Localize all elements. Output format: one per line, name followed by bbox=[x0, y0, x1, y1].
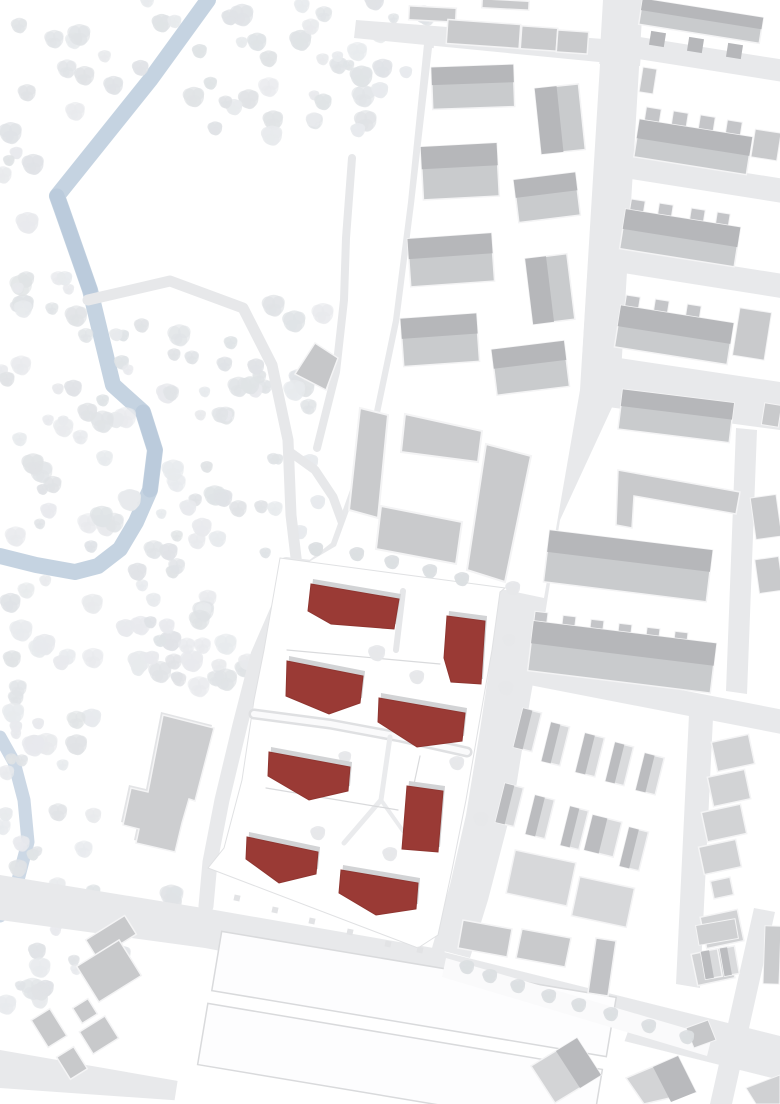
boundary-shrub bbox=[233, 894, 240, 901]
red-building-6 bbox=[402, 786, 443, 852]
terrace-a-tooth bbox=[649, 31, 666, 47]
boundary-shrub bbox=[416, 946, 423, 953]
slab-block-1 bbox=[431, 65, 514, 110]
slab-block-6 bbox=[525, 254, 575, 325]
red-building-2 bbox=[444, 616, 485, 684]
slab-block-2 bbox=[535, 84, 586, 154]
north-bar-4 bbox=[520, 26, 558, 51]
edge-building bbox=[761, 403, 780, 427]
edge-building bbox=[750, 494, 780, 539]
terrace-b-end bbox=[751, 129, 780, 161]
north-bar-3 bbox=[446, 19, 520, 48]
slab-block-3 bbox=[421, 143, 500, 200]
edge-building bbox=[755, 556, 780, 593]
boundary-shrub bbox=[308, 917, 315, 924]
terrace-d-end bbox=[732, 308, 771, 360]
site-plan-map-container bbox=[0, 0, 780, 1104]
terrace-a-tooth bbox=[687, 37, 704, 53]
slab-block-5 bbox=[407, 233, 494, 287]
site-plan-map bbox=[0, 0, 780, 1104]
slab-block-7 bbox=[400, 313, 479, 366]
terrace-a-tooth bbox=[726, 43, 743, 59]
boundary-shrub bbox=[384, 940, 391, 947]
slab-block-8 bbox=[491, 341, 569, 396]
site-plan-page bbox=[0, 0, 780, 1104]
t-house-small bbox=[710, 877, 733, 899]
slab-block-4 bbox=[514, 172, 581, 222]
north-bar-2 bbox=[482, 0, 529, 10]
boundary-shrub bbox=[346, 928, 353, 935]
se-house-8 bbox=[763, 926, 780, 985]
boundary-shrub bbox=[271, 906, 278, 913]
north-bar-5 bbox=[556, 30, 588, 54]
